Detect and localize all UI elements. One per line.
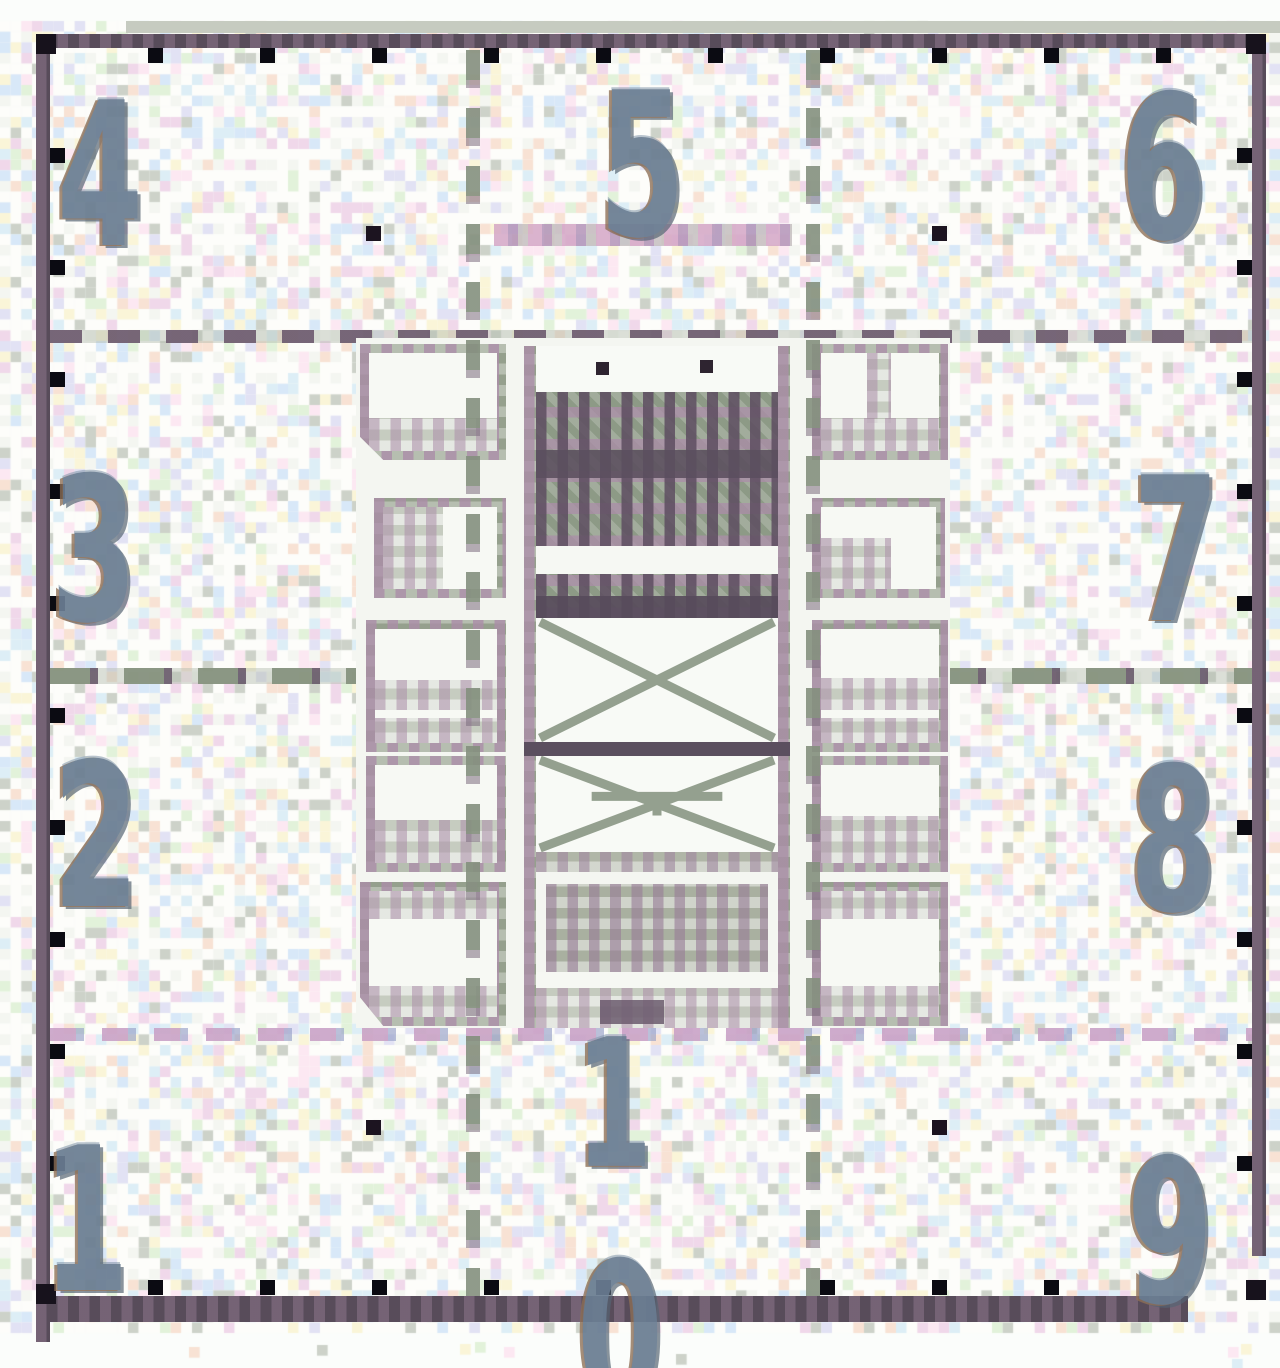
column-grid-label: 5 xyxy=(599,67,685,267)
column-grid-label: 0 xyxy=(577,1237,663,1368)
column-grid-label: 1 xyxy=(43,1122,129,1322)
floor-plan-stage: 45637281910 xyxy=(0,0,1280,1368)
column-grid-label: 9 xyxy=(1127,1134,1213,1334)
column-grid-label: 2 xyxy=(53,738,139,938)
grid-label-layer: 45637281910 xyxy=(0,0,1280,1368)
column-grid-label: 3 xyxy=(51,452,137,652)
column-grid-label: 4 xyxy=(57,77,143,277)
column-grid-label: 8 xyxy=(1130,742,1216,942)
column-grid-label: 1 xyxy=(576,1016,653,1194)
column-grid-label: 6 xyxy=(1120,70,1206,270)
column-grid-label: 7 xyxy=(1133,452,1219,652)
